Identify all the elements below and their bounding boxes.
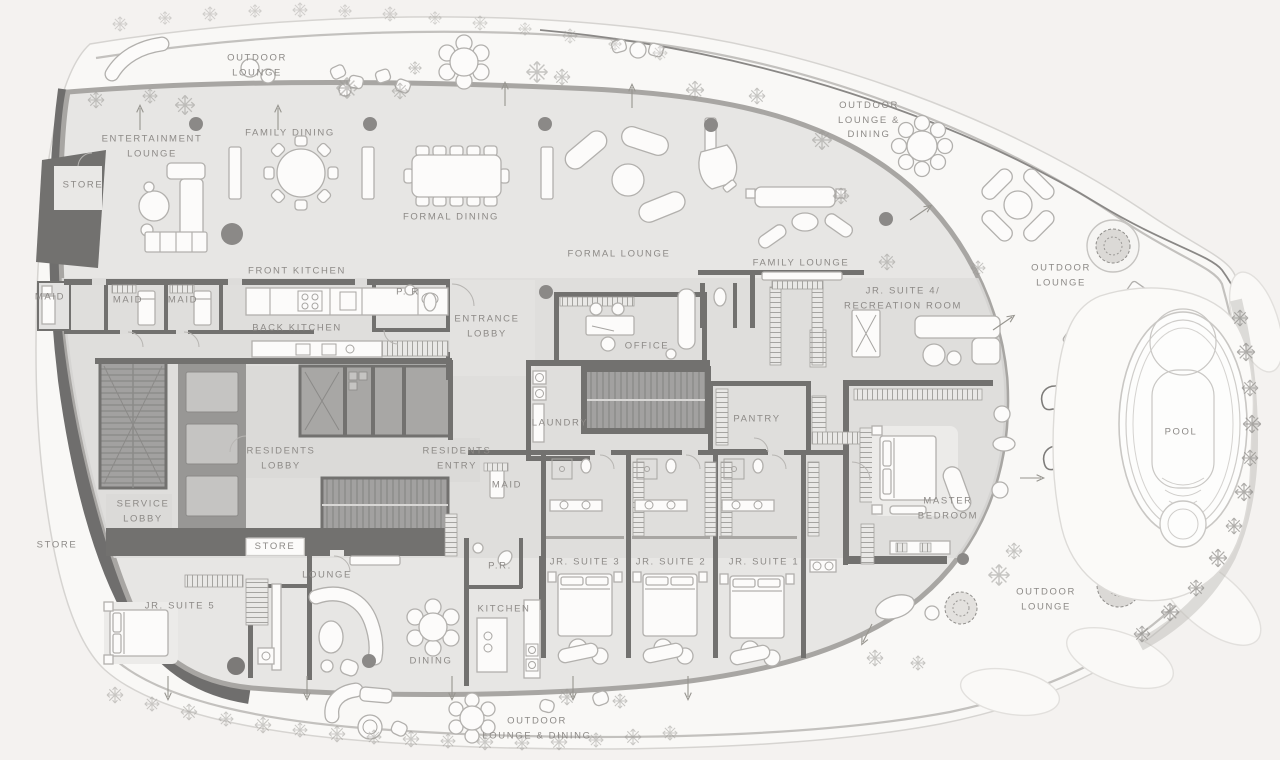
entrance-lobby-floor: [450, 280, 535, 376]
outdoor-dining-table-right: [892, 116, 953, 177]
maid-room-1: [38, 282, 70, 330]
store-upper-left-room: [36, 150, 106, 268]
laundry-fixtures: [533, 371, 546, 442]
front-kitchen-counter: [246, 288, 448, 315]
planter-tree: [1087, 220, 1139, 272]
floor-plan-svg: [0, 0, 1280, 760]
floor-plan: OUTDOOR LOUNGEFAMILY DININGENTERTAINMENT…: [0, 0, 1280, 760]
pool: [1053, 288, 1253, 601]
formal-dining-table: [404, 146, 509, 206]
back-kitchen-counter: [252, 341, 382, 357]
